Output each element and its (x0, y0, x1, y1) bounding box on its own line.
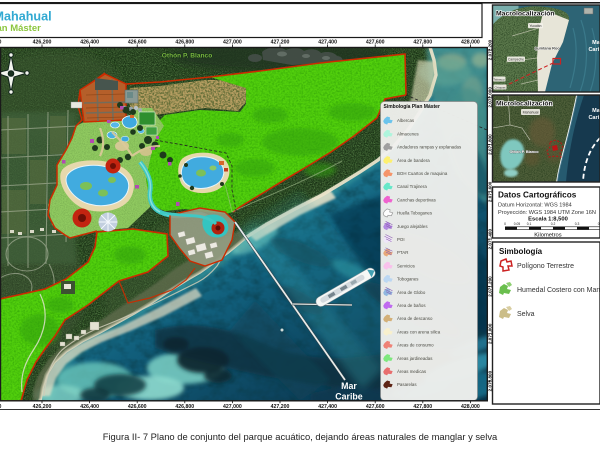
svg-text:Tabasco: Tabasco (493, 77, 505, 81)
svg-text:Quintana Roo: Quintana Roo (534, 46, 560, 51)
svg-text:POI: POI (397, 237, 405, 242)
svg-text:Almacenes: Almacenes (397, 131, 420, 136)
svg-text:Yucatán: Yucatán (530, 24, 542, 28)
svg-text:Simbología: Simbología (499, 247, 543, 256)
svg-text:Áreas con arena silica: Áreas con arena silica (397, 329, 441, 334)
svg-text:Área de descanso: Área de descanso (397, 316, 433, 321)
svg-text:Canchas deportivas: Canchas deportivas (397, 197, 437, 202)
svg-text:Macrolocalización: Macrolocalización (496, 11, 555, 18)
svg-text:Mahahual: Mahahual (0, 10, 52, 24)
svg-text:Área de bandera: Área de bandera (397, 158, 430, 163)
svg-text:Albercas: Albercas (397, 118, 415, 123)
svg-text:Chiapas: Chiapas (494, 86, 506, 90)
svg-text:426,000: 426,000 (0, 40, 1, 46)
svg-text:Datos Cartográficos: Datos Cartográficos (498, 191, 577, 200)
svg-text:Caribe: Caribe (588, 115, 600, 121)
svg-text:Mar: Mar (592, 108, 600, 114)
svg-text:Mar: Mar (592, 40, 600, 46)
svg-text:Caribe: Caribe (335, 392, 362, 402)
svg-text:Selva: Selva (517, 311, 535, 318)
svg-text:Áreas medicas: Áreas medicas (397, 369, 427, 374)
svg-text:Othón P. Blanco: Othón P. Blanco (509, 150, 539, 154)
svg-text:Caribe: Caribe (588, 47, 600, 53)
svg-text:Othón P. Blanco: Othón P. Blanco (162, 53, 212, 60)
svg-text:Campeche: Campeche (508, 58, 524, 62)
svg-text:Mar: Mar (341, 381, 357, 391)
svg-text:Plan Máster: Plan Máster (0, 23, 41, 34)
svg-text:BOH Cuartos de maquina: BOH Cuartos de maquina (397, 171, 448, 176)
svg-text:0.1: 0.1 (527, 222, 532, 226)
svg-text:Pasarelas: Pasarelas (397, 382, 417, 387)
svg-text:Polígono Terrestre: Polígono Terrestre (517, 263, 574, 270)
svg-text:Área de baños: Área de baños (397, 303, 426, 308)
svg-text:Proyección: WGS 1984 UTM Zone: Proyección: WGS 1984 UTM Zone 16N (498, 210, 596, 216)
svg-text:0.3: 0.3 (575, 222, 580, 226)
svg-text:Canal Trajinera: Canal Trajinera (397, 184, 427, 189)
svg-text:Escala 1:8,500: Escala 1:8,500 (528, 217, 568, 223)
svg-text:Figura II- 7 Plano de conjunto: Figura II- 7 Plano de conjunto del parqu… (103, 431, 498, 442)
svg-text:Áreas de consumo: Áreas de consumo (397, 343, 434, 348)
svg-text:Huella Toboganes: Huella Toboganes (397, 211, 433, 216)
svg-text:0.2: 0.2 (551, 222, 556, 226)
svg-text:0.05: 0.05 (514, 222, 521, 226)
svg-text:Datum Horizontal: WGS 1984: Datum Horizontal: WGS 1984 (498, 203, 572, 209)
svg-text:Servicios: Servicios (397, 263, 416, 268)
svg-text:Mahahual: Mahahual (523, 111, 539, 115)
svg-text:Áreas jardineadas: Áreas jardineadas (397, 356, 433, 361)
svg-text:PTAR: PTAR (397, 250, 408, 255)
svg-text:Microlocalización: Microlocalización (496, 101, 553, 108)
svg-text:Área de Globo: Área de Globo (397, 290, 426, 295)
svg-text:0: 0 (504, 222, 506, 226)
svg-text:Humedal Costero con Mang: Humedal Costero con Mang (517, 287, 600, 294)
svg-text:Toboganes: Toboganes (397, 277, 419, 282)
svg-text:Andadores rampas y explanadas: Andadores rampas y explanadas (397, 145, 462, 150)
svg-text:Juego alejables: Juego alejables (397, 224, 428, 229)
svg-text:Simbología Plan Máster: Simbología Plan Máster (384, 104, 440, 110)
